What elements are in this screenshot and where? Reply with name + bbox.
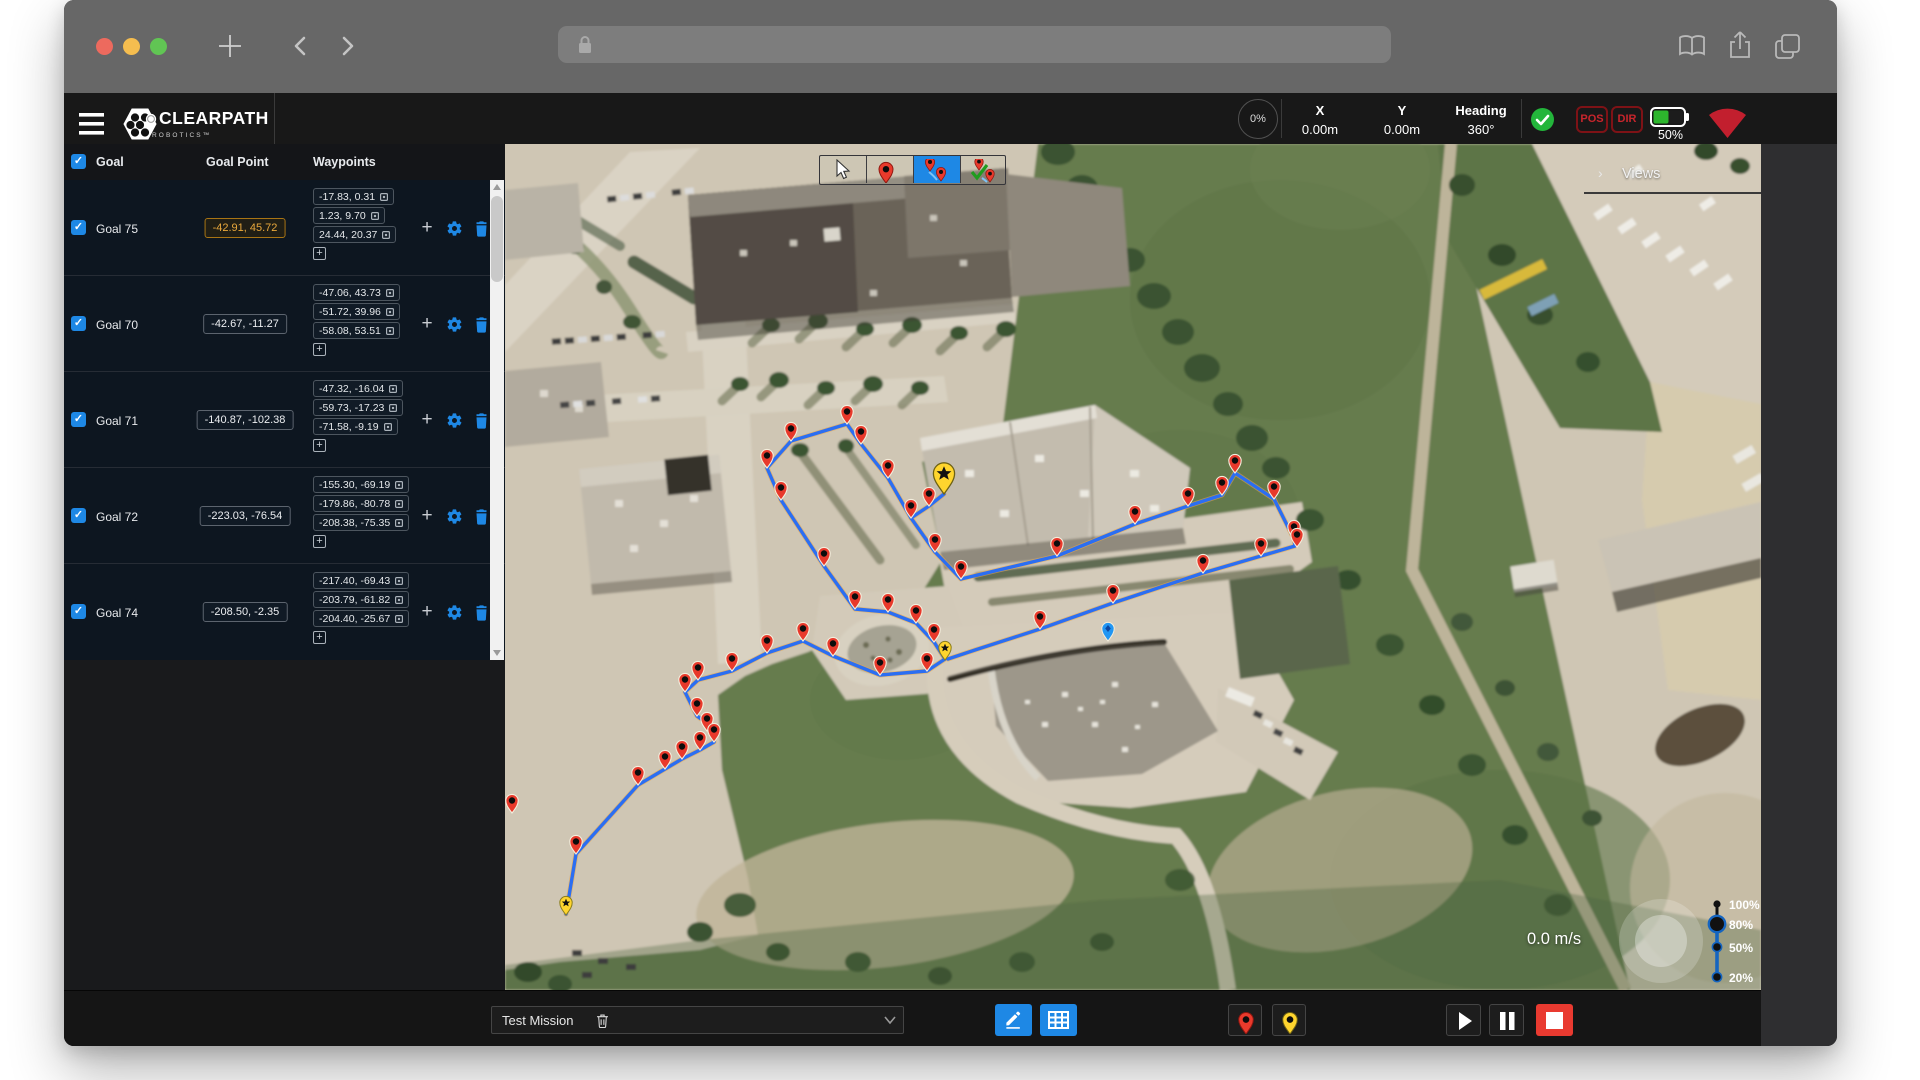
svg-text:80%: 80% [1729,918,1753,932]
svg-text:100%: 100% [1729,898,1760,912]
svg-text:20%: 20% [1729,971,1753,985]
svg-text:50%: 50% [1729,941,1753,955]
